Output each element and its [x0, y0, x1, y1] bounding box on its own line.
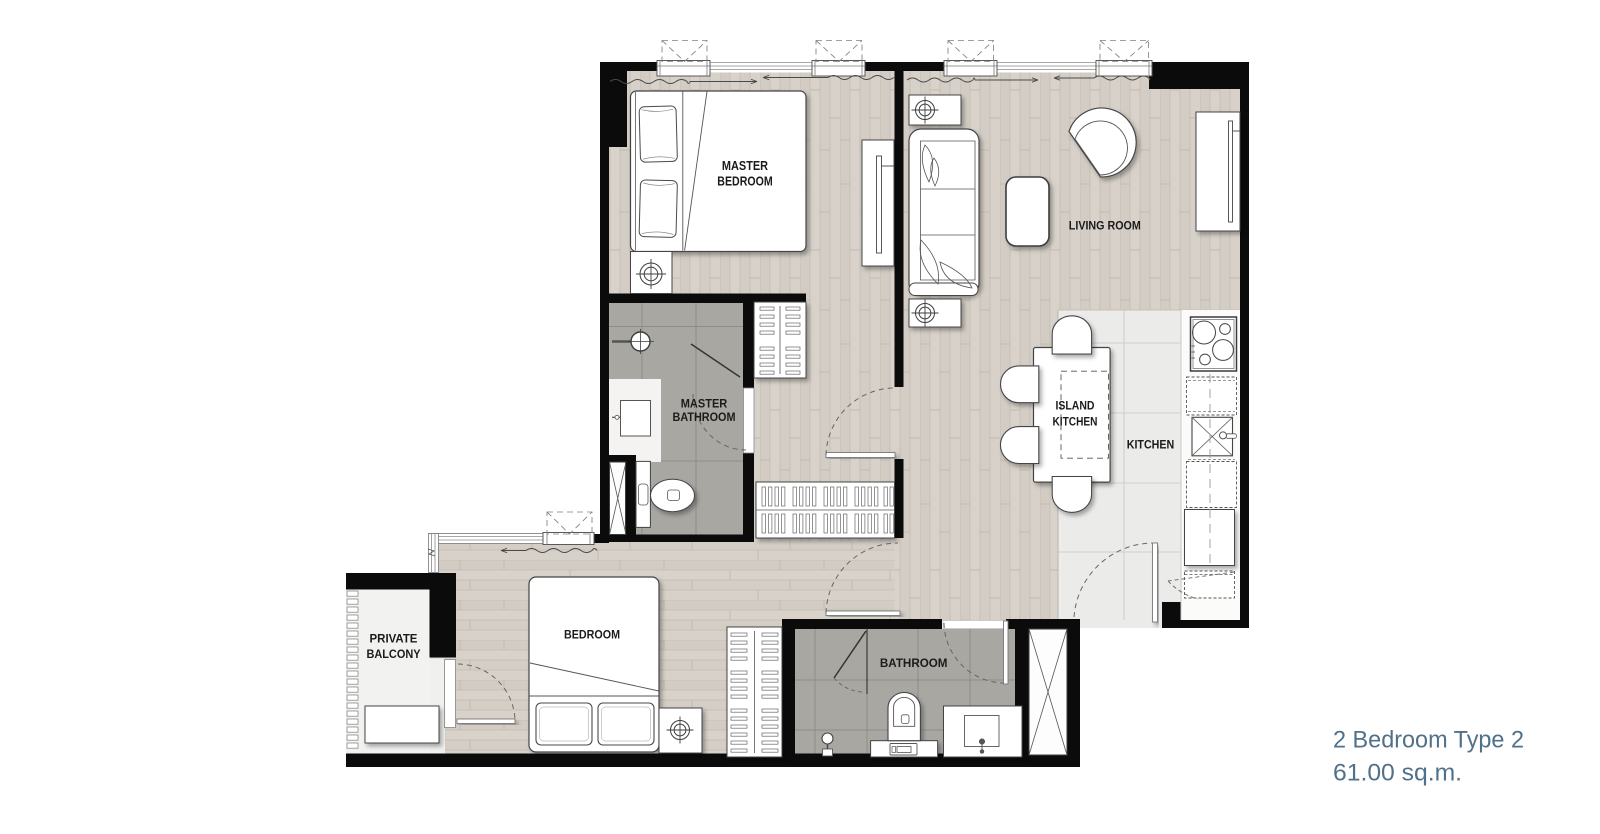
svg-text:MASTER: MASTER: [681, 397, 728, 411]
svg-text:BATHROOM: BATHROOM: [880, 656, 948, 670]
svg-text:MASTER: MASTER: [722, 159, 768, 173]
svg-text:61.00 sq.m.: 61.00 sq.m.: [1333, 760, 1462, 787]
svg-text:BEDROOM: BEDROOM: [564, 628, 620, 642]
svg-text:BATHROOM: BATHROOM: [673, 410, 736, 424]
svg-text:KITCHEN: KITCHEN: [1053, 415, 1098, 429]
svg-text:BEDROOM: BEDROOM: [717, 175, 772, 189]
svg-text:ISLAND: ISLAND: [1056, 399, 1095, 413]
svg-text:2 Bedroom Type 2: 2 Bedroom Type 2: [1333, 727, 1524, 754]
svg-text:PRIVATE: PRIVATE: [370, 633, 418, 645]
svg-text:KITCHEN: KITCHEN: [1127, 437, 1175, 451]
svg-text:LIVING ROOM: LIVING ROOM: [1069, 219, 1141, 233]
svg-text:BALCONY: BALCONY: [366, 649, 420, 661]
